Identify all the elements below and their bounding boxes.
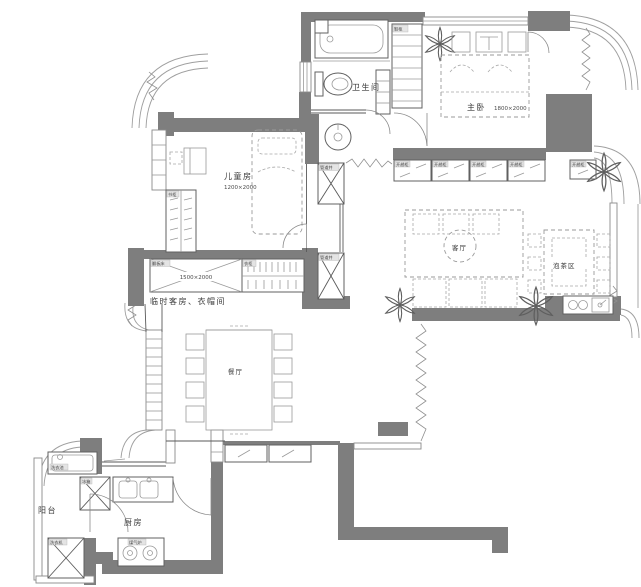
- bay-window-arcs-top-right: [566, 15, 638, 90]
- washing-machine-tag: 洗衣机: [50, 539, 63, 546]
- shaft-tag: 管道井: [320, 164, 333, 171]
- shaft-tag: 管道井: [320, 254, 333, 261]
- kids-bed: [252, 130, 302, 234]
- dining-label: 餐厅: [228, 367, 243, 376]
- plant-icon: [425, 28, 455, 61]
- master-door-arc: [528, 32, 549, 53]
- entry-door-arc: [394, 113, 427, 146]
- shaft-box-1: 管道井: [318, 163, 344, 204]
- master-label: 主卧: [467, 102, 486, 112]
- window-kids-left: [152, 130, 166, 190]
- kids-desk: [170, 148, 206, 174]
- floor-plan: 卫生间 鞋柜 管道井: [0, 0, 641, 587]
- murphy-bed-dim: 1500×2000: [180, 275, 213, 281]
- bookcase: 书柜: [166, 190, 196, 252]
- wardrobe-cabinet: 开趟柜: [394, 160, 431, 181]
- window-dining-left: [146, 330, 162, 430]
- living-room: 客厅: [385, 210, 523, 322]
- bathroom: 卫生间: [313, 20, 390, 134]
- laundry-sink-tag: 洗衣池: [51, 464, 64, 471]
- kitchen-door-arc: [173, 478, 211, 515]
- fridge-tag: 冰箱: [82, 478, 90, 485]
- kids-door-arc: [283, 224, 307, 248]
- plant-icon: [385, 289, 415, 322]
- murphy-bed-tag: 翻板床: [152, 260, 165, 267]
- fridge: 冰箱: [80, 477, 110, 510]
- laundry-sink: 洗衣池: [48, 452, 97, 474]
- murphy-bed: 翻板床 1500×2000: [150, 259, 242, 292]
- break-line-icon: [582, 28, 590, 90]
- toilet: [315, 72, 352, 96]
- master-dim: 1800×2000: [494, 106, 527, 112]
- shaft-box-2: 管道井: [318, 253, 344, 299]
- cloak-wardrobe: 衣柜: [242, 259, 304, 292]
- shoe-cabinet-tag: 鞋柜: [394, 26, 402, 33]
- balcony-label: 阳台: [38, 505, 57, 515]
- chaise-row: [413, 279, 517, 307]
- bookcase-tag: 书柜: [168, 191, 176, 198]
- stove: 煤气炉: [118, 538, 164, 566]
- stove-tag: 煤气炉: [129, 539, 142, 546]
- bathroom-label: 卫生间: [352, 82, 381, 92]
- kids-label: 儿童房: [224, 171, 253, 181]
- dining-table: [206, 330, 272, 430]
- wardrobe-cabinet: 开趟柜: [470, 160, 507, 181]
- tea-label: 泡茶区: [553, 261, 576, 270]
- break-line-icon: [147, 72, 157, 100]
- shoe-cabinet: 鞋柜: [392, 24, 422, 108]
- cloak-wardrobe-tag: 衣柜: [244, 260, 252, 267]
- master-nightstands: [452, 32, 526, 52]
- kitchen-sink: [113, 477, 173, 502]
- guest-cloak-room: 翻板床 1500×2000 衣柜 临时客房、衣帽间: [150, 259, 304, 306]
- balcony: 洗衣池 洗衣机 阳台: [38, 452, 128, 578]
- wardrobe-cabinet: 开趟柜: [570, 160, 596, 179]
- kids-dim: 1200×2000: [224, 185, 257, 191]
- wardrobe-cabinet-tag: 开趟柜: [572, 161, 585, 168]
- washing-machine: 洗衣机: [48, 538, 84, 578]
- tea-counter: [563, 296, 613, 314]
- wardrobe-cabinet-tag: 开趟柜: [396, 161, 409, 168]
- master-bedroom: 主卧 1800×2000: [425, 28, 549, 118]
- storage-cabinets: [225, 445, 311, 462]
- kids-room: 书柜 儿童房 1200×2000: [166, 130, 307, 252]
- wardrobe-cabinet: 开趟柜: [432, 160, 469, 181]
- window-kitchen-right: [211, 430, 223, 462]
- wardrobe-cabinet-tag: 开趟柜: [510, 161, 523, 168]
- guest-label: 临时客房、衣帽间: [150, 296, 226, 306]
- wardrobe-cabinet: 开趟柜: [508, 160, 545, 181]
- wardrobe-cabinet-tag: 开趟柜: [472, 161, 485, 168]
- dining-chairs: [186, 326, 292, 434]
- window-bathroom-left: [300, 62, 311, 92]
- break-line-icon: [346, 159, 392, 167]
- wardrobe-cabinet-tag: 开趟柜: [434, 161, 447, 168]
- window-master-top: [423, 17, 528, 25]
- window-dining-bottom: [354, 443, 421, 449]
- entry-basin: [325, 124, 351, 150]
- bathroom-shelf: [376, 70, 390, 114]
- living-label: 客厅: [452, 243, 467, 252]
- bathtub: [315, 20, 388, 58]
- break-line-icon: [416, 324, 426, 441]
